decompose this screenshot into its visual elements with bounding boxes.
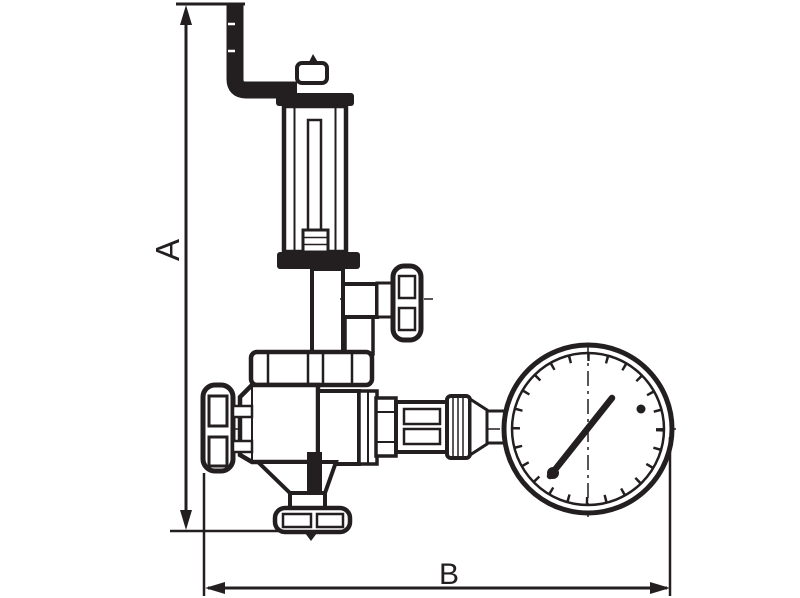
arrowhead-left [205,582,225,594]
arrowhead-down [180,510,192,530]
dimension-label-a: A [149,239,186,261]
bottom-outlet [258,452,350,541]
flow-tip [305,533,317,541]
outlet-cone [258,462,336,493]
housing-cap [297,63,327,83]
pressure-gauge [504,343,672,517]
max-pressure-marker [637,405,646,414]
body-top-flange [251,352,372,385]
connector-nut [376,398,396,456]
side-valve-bonnet [343,284,377,317]
body-right-section [318,391,359,464]
inlet-stub-upper [233,406,252,417]
housing-bottom-flange [277,252,360,269]
side-valve-column [345,316,373,354]
valve-dimension-drawing: A B [0,0,800,598]
inlet-stub-lower [233,441,252,452]
arrowhead-up [180,5,192,25]
dimension-label-b: B [439,558,459,591]
needle-counterweight [547,467,559,479]
adjusting-stem [308,120,321,232]
drawing-canvas: A B [0,0,800,598]
arrowhead-right [650,582,670,594]
vent-pipe [228,4,297,90]
lock-nut [303,230,328,252]
bonnet-neck [312,269,343,354]
gauge-connector [376,396,506,458]
gauge-socket [470,399,487,455]
side-test-valve [340,266,433,354]
